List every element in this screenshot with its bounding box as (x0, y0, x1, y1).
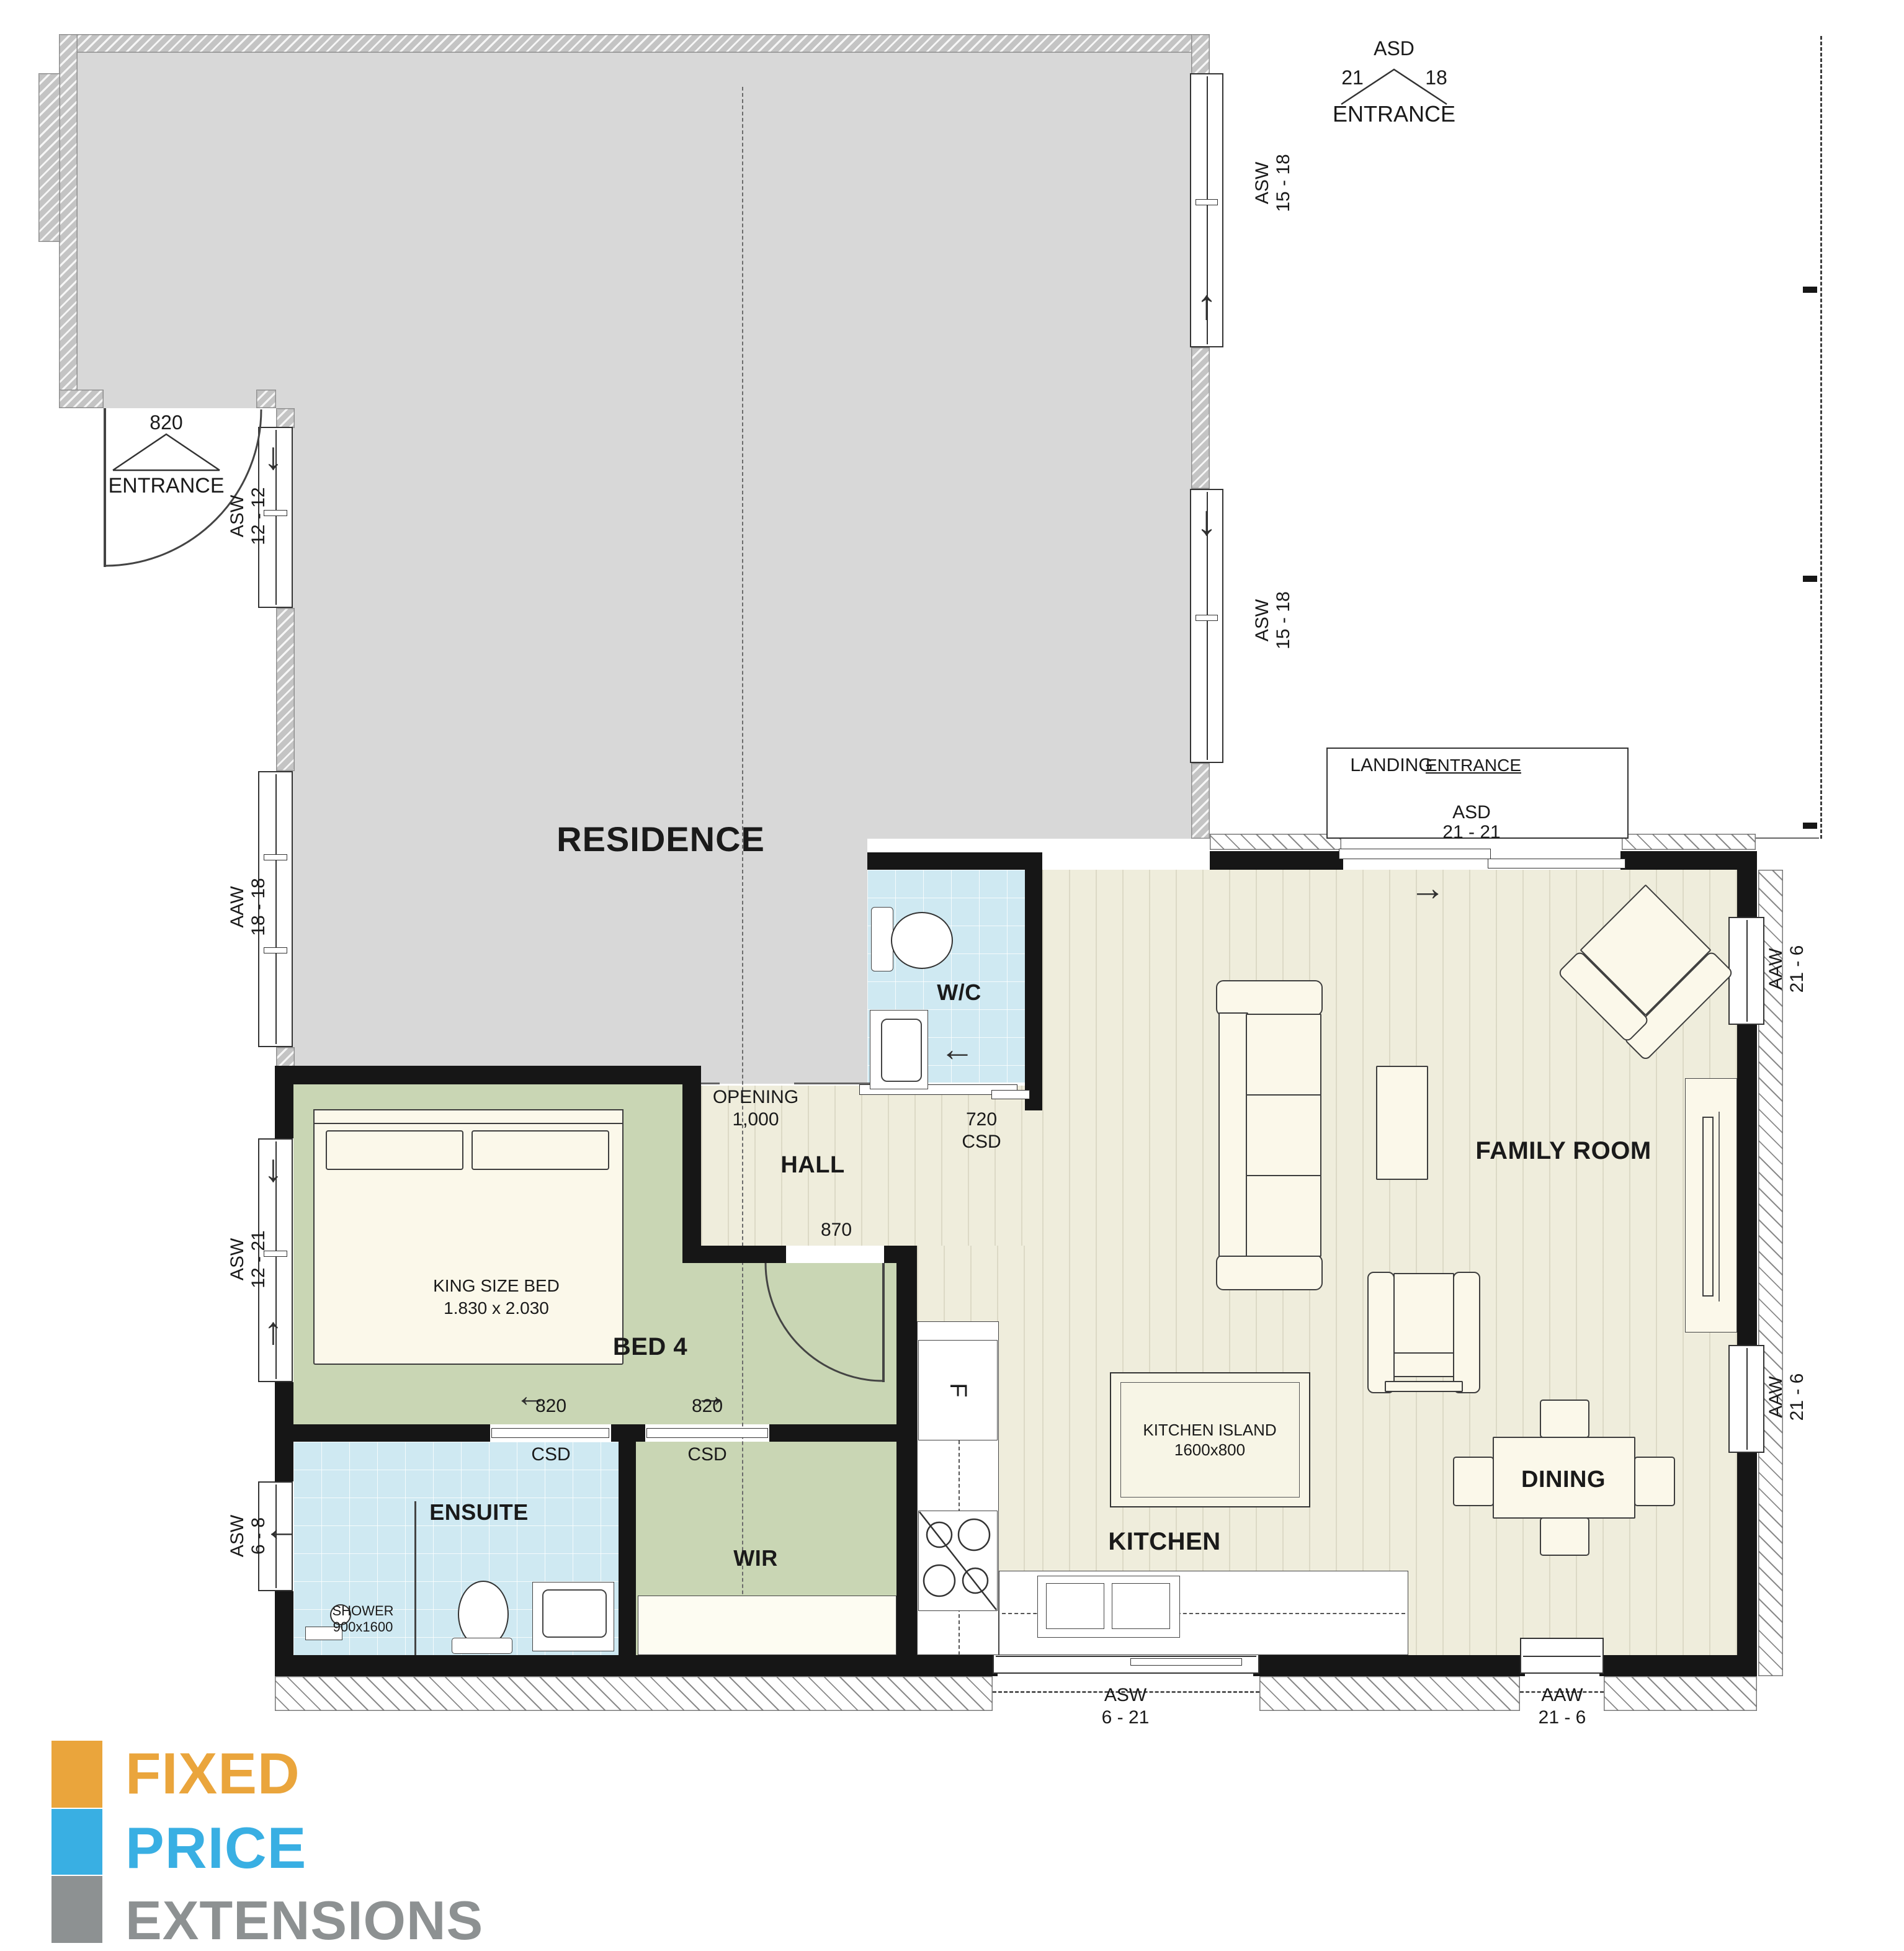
window-size: 15 - 18 (1273, 154, 1294, 212)
bed4-slider-panel (491, 1428, 609, 1438)
armchair-base (1385, 1381, 1463, 1392)
wall-bed4-bottom-b (611, 1424, 645, 1442)
wall-870-a (682, 1246, 786, 1263)
window-code: ASW (1252, 162, 1273, 204)
wc-basin-bowl (881, 1019, 922, 1082)
window-label-aaw1818: AAW 18 - 18 (217, 864, 279, 950)
sink-bowl-right (1112, 1583, 1170, 1629)
sink-bowl-left (1046, 1583, 1104, 1629)
wc-cistern (871, 907, 893, 971)
window-code: ASW (1252, 599, 1273, 641)
wir-slider-panel (646, 1428, 768, 1438)
dining-chair-bottom (1540, 1517, 1589, 1556)
sofa-arm-top (1216, 980, 1323, 1016)
wc-door-size: 720 (938, 1109, 1025, 1130)
armchair-arm-left (1367, 1272, 1395, 1393)
armchair-seat (1393, 1273, 1454, 1354)
entrance-top-dim-left: 21 (1328, 65, 1377, 90)
bed4-label: BED 4 (588, 1333, 712, 1361)
wall-wc-right (1025, 852, 1042, 1110)
wall-870-b (884, 1246, 896, 1263)
dining-chair-right (1634, 1457, 1675, 1506)
logo-blue-block (51, 1809, 102, 1875)
opening-line1: OPENING (687, 1087, 824, 1108)
window-label-aaw216-right-top: AAW 21 - 6 (1756, 926, 1818, 1012)
bed-size-line2: 1.830 x 2.030 (397, 1298, 596, 1319)
coffee-table (1376, 1066, 1428, 1180)
bed-door-type: CSD (507, 1444, 594, 1465)
sofa-seat-2 (1246, 1094, 1321, 1176)
wc-slide-arrow-icon: ← (940, 1029, 975, 1069)
landing-entrance-label: ENTRANCE (1421, 754, 1526, 777)
hatch-top-right (1622, 834, 1756, 850)
residence-wall-right-a (1191, 34, 1210, 74)
hall-door-leaf (882, 1263, 885, 1382)
wc-toilet-bowl (891, 912, 953, 969)
window-arrow-down-icon: ↓ (1196, 496, 1217, 545)
window-label-asw68: ASW 6 - 8 (217, 1493, 279, 1579)
shower-label-line1: SHOWER (310, 1603, 416, 1619)
window-label-asw1518-lower: ASW 15 - 18 (1242, 577, 1304, 664)
window-size: 18 - 18 (248, 878, 269, 935)
tv-line (1719, 1112, 1720, 1301)
logo-line1: FIXED (125, 1744, 300, 1803)
window-code: ASW (227, 495, 248, 537)
ensuite-cistern (452, 1638, 512, 1654)
wall-bed4-right (682, 1084, 701, 1246)
bed-pillow-right (472, 1130, 609, 1170)
window-arrow-down-icon: ↓ (264, 1146, 283, 1190)
wall-ensuite-wir (619, 1442, 636, 1655)
wir-door-size: 820 (664, 1396, 751, 1417)
residence-wall-left-lower-a (276, 408, 295, 428)
hatch-bottom-a (275, 1676, 993, 1711)
boundary-post-2 (1803, 576, 1817, 582)
wall-wc-top (867, 852, 1042, 870)
window-label-aaw216-bottom-size: 21 - 6 (1506, 1707, 1618, 1728)
window-label-aaw216-right-bottom: AAW 21 - 6 (1756, 1354, 1818, 1440)
residence-wall-entry-b (256, 390, 276, 408)
window-code: ASW (227, 1238, 248, 1280)
landing-size: 21 - 21 (1428, 821, 1515, 844)
fridge-label: F (944, 1372, 972, 1409)
tv-screen (1702, 1117, 1714, 1297)
kitchen-label: KITCHEN (1087, 1527, 1242, 1556)
hatch-top-left (1210, 834, 1341, 850)
wall-bed4-bottom-a (275, 1424, 490, 1442)
wall-family-top-left (1210, 851, 1343, 870)
hall-door-size: 870 (793, 1220, 880, 1241)
junction-line-ext (1756, 837, 1819, 839)
window-arrow-up-icon: ↑ (264, 1309, 283, 1353)
residence-wall-notch (38, 73, 60, 242)
window-label-aaw216-bottom-code: AAW (1506, 1685, 1618, 1706)
window-label-asw1518-upper: ASW 15 - 18 (1242, 140, 1304, 226)
window-size: 21 - 6 (1787, 1373, 1808, 1421)
wir-bench (638, 1596, 896, 1655)
wall-bottom-c (1599, 1655, 1757, 1676)
sofa-arm-bottom (1216, 1254, 1323, 1290)
entrance-left-label: ENTRANCE (98, 473, 235, 499)
window-code: AAW (227, 886, 248, 927)
opening-jamb-left (701, 1083, 720, 1084)
wall-family-top-right (1620, 851, 1756, 870)
logo-line2: PRICE (125, 1819, 306, 1877)
landing-slide-arrow-icon: → (1410, 867, 1446, 909)
window-size: 15 - 18 (1273, 591, 1294, 649)
entrance-triangle-left (113, 434, 220, 470)
wall-bed4-bottom-c (769, 1424, 896, 1442)
residence-wall-right-c (1191, 763, 1210, 839)
residence-wall-left-lower-b (276, 608, 295, 771)
landing-slider-panel-a (1339, 849, 1491, 859)
landing-slider-panel-b (1488, 859, 1625, 868)
wall-left-c (275, 1591, 293, 1675)
boundary-post-3 (1803, 823, 1817, 829)
sofa-seat-1 (1246, 1014, 1321, 1096)
hatch-bottom-c (1604, 1676, 1757, 1711)
sofa-seat-3 (1246, 1175, 1321, 1257)
logo-line3: EXTENSIONS (125, 1893, 483, 1948)
window-label-asw621-size: 6 - 21 (1070, 1707, 1181, 1728)
window-label-asw1212: ASW 12 - 12 (217, 473, 279, 560)
bed-door-size: 820 (507, 1396, 594, 1417)
hall-label: HALL (754, 1151, 872, 1179)
window-size: 21 - 6 (1787, 945, 1808, 993)
window-label-asw621-code: ASW (1070, 1685, 1181, 1706)
wir-label: WIR (706, 1545, 805, 1572)
armchair-back (1393, 1352, 1454, 1377)
bed-pillow-left (326, 1130, 463, 1170)
residence-wall-entry-a (59, 390, 104, 408)
entrance-top-code: ASD (1348, 36, 1441, 61)
shower-label-line2: 900x1600 (310, 1619, 416, 1635)
logo-gray-block (51, 1876, 102, 1943)
residence-wall-left (59, 34, 78, 408)
sofa-back (1218, 1012, 1248, 1257)
entrance-left-size: 820 (123, 411, 210, 434)
logo-orange-block (51, 1741, 102, 1808)
hatch-bottom-b (1259, 1676, 1520, 1711)
wc-door-type: CSD (938, 1132, 1025, 1153)
window-size: 6 - 8 (248, 1517, 269, 1555)
wall-right-b (1737, 1024, 1757, 1346)
window-code: AAW (1766, 948, 1787, 989)
ensuite-label: ENSUITE (411, 1499, 547, 1526)
wall-bed4-top (275, 1066, 701, 1084)
window-code: AAW (1766, 1376, 1787, 1417)
residence-wall-right-b (1191, 347, 1210, 489)
window-arrow-up-icon: ↑ (1196, 280, 1217, 329)
wall-right-a (1737, 851, 1757, 918)
wall-bottom-a (275, 1655, 998, 1676)
residence-wall-top (59, 34, 1210, 53)
window-size: 12 - 12 (248, 487, 269, 545)
window-code: ASW (227, 1515, 248, 1557)
dining-chair-left (1453, 1457, 1494, 1506)
boundary-dashed-line (1820, 36, 1822, 839)
floor-plan: ↑ ↓ ↓ ↓ ↑ ← → ← ← → ← → (0, 0, 1904, 1951)
dining-label: DINING (1495, 1465, 1632, 1494)
landing-code: ASD (1428, 801, 1515, 824)
dining-chair-top (1540, 1400, 1589, 1438)
wall-right-c (1737, 1452, 1757, 1675)
window-size: 12 - 21 (248, 1230, 269, 1288)
wir-door-type: CSD (664, 1444, 751, 1465)
window-arrow-down-icon: ↓ (264, 434, 283, 478)
armchair-arm-right (1453, 1272, 1480, 1393)
stove (918, 1511, 998, 1611)
window-label-asw1221: ASW 12 - 21 (217, 1216, 279, 1303)
wall-wir-kitchen (896, 1246, 917, 1655)
entrance-top-label: ENTRANCE (1326, 100, 1462, 128)
island-label-line1: KITCHEN ISLAND (1111, 1421, 1309, 1439)
opening-line2: 1,000 (687, 1109, 824, 1130)
wall-bottom-b (1253, 1655, 1525, 1676)
boundary-post-1 (1803, 287, 1817, 293)
wc-label: W/C (910, 979, 1009, 1006)
family-room-label: FAMILY ROOM (1464, 1136, 1663, 1165)
wc-slider-panel-b (991, 1090, 1030, 1099)
bed-size-line1: KING SIZE BED (397, 1275, 596, 1297)
entrance-top-dim-right: 18 (1411, 65, 1461, 90)
bed-headboard (313, 1109, 623, 1124)
residence-label: RESIDENCE (537, 820, 785, 857)
ensuite-basin (542, 1589, 607, 1638)
window-aaw216-bottom (1520, 1638, 1604, 1674)
island-label-line2: 1600x800 (1111, 1440, 1309, 1459)
